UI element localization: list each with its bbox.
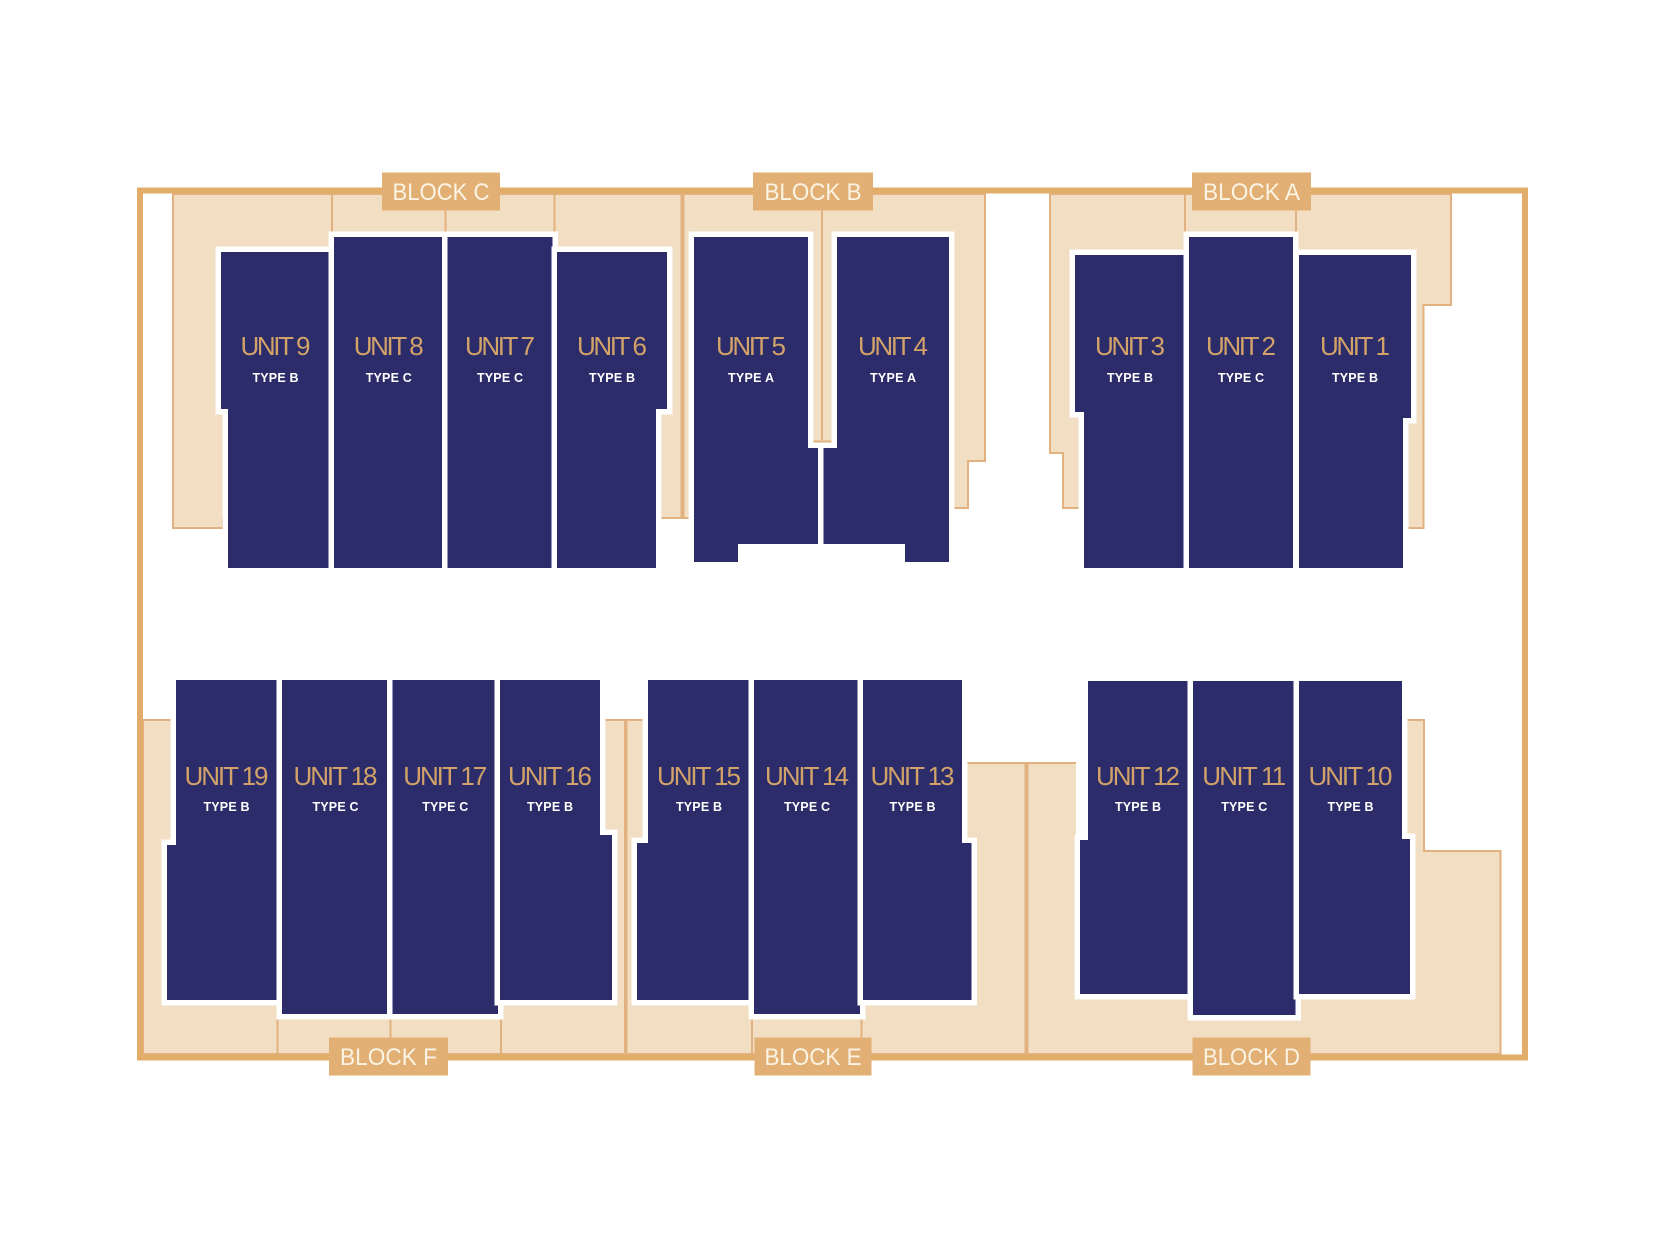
svg-text:TYPE A: TYPE A [728,371,774,385]
svg-text:TYPE C: TYPE C [366,371,412,385]
svg-text:TYPE B: TYPE B [253,371,299,385]
svg-text:TYPE B: TYPE B [890,800,936,814]
svg-text:TYPE C: TYPE C [313,800,359,814]
svg-text:UNIT 2: UNIT 2 [1206,331,1276,361]
svg-text:TYPE C: TYPE C [784,800,830,814]
svg-text:UNIT 13: UNIT 13 [871,761,955,791]
svg-text:UNIT 10: UNIT 10 [1309,761,1393,791]
svg-text:TYPE B: TYPE B [204,800,250,814]
svg-text:BLOCK C: BLOCK C [393,179,490,206]
svg-text:TYPE B: TYPE B [1328,800,1374,814]
svg-text:UNIT 14: UNIT 14 [765,761,849,791]
svg-text:UNIT 16: UNIT 16 [508,761,592,791]
svg-text:UNIT 1: UNIT 1 [1320,331,1390,361]
svg-text:UNIT 5: UNIT 5 [716,331,786,361]
svg-text:UNIT 15: UNIT 15 [657,761,741,791]
svg-text:TYPE C: TYPE C [1218,371,1264,385]
svg-text:UNIT 6: UNIT 6 [577,331,647,361]
svg-text:BLOCK B: BLOCK B [765,179,862,206]
svg-text:TYPE C: TYPE C [422,800,468,814]
svg-text:TYPE B: TYPE B [589,371,635,385]
svg-text:TYPE B: TYPE B [527,800,573,814]
svg-text:UNIT 7: UNIT 7 [465,331,535,361]
svg-text:TYPE B: TYPE B [1332,371,1378,385]
svg-text:BLOCK D: BLOCK D [1203,1044,1300,1071]
svg-text:TYPE A: TYPE A [870,371,916,385]
svg-text:UNIT 8: UNIT 8 [354,331,424,361]
svg-text:TYPE C: TYPE C [1221,800,1267,814]
svg-text:UNIT 9: UNIT 9 [241,331,311,361]
svg-text:TYPE B: TYPE B [1107,371,1153,385]
svg-text:TYPE B: TYPE B [676,800,722,814]
svg-text:UNIT 11: UNIT 11 [1202,761,1286,791]
svg-text:UNIT 17: UNIT 17 [403,761,487,791]
svg-text:BLOCK E: BLOCK E [765,1044,862,1071]
svg-text:BLOCK F: BLOCK F [340,1044,437,1071]
svg-text:TYPE C: TYPE C [477,371,523,385]
svg-text:UNIT 12: UNIT 12 [1096,761,1180,791]
svg-text:UNIT 3: UNIT 3 [1095,331,1165,361]
svg-text:UNIT 4: UNIT 4 [858,331,928,361]
svg-text:BLOCK A: BLOCK A [1203,179,1300,206]
svg-text:UNIT 18: UNIT 18 [294,761,378,791]
svg-text:TYPE B: TYPE B [1115,800,1161,814]
svg-text:UNIT 19: UNIT 19 [185,761,269,791]
